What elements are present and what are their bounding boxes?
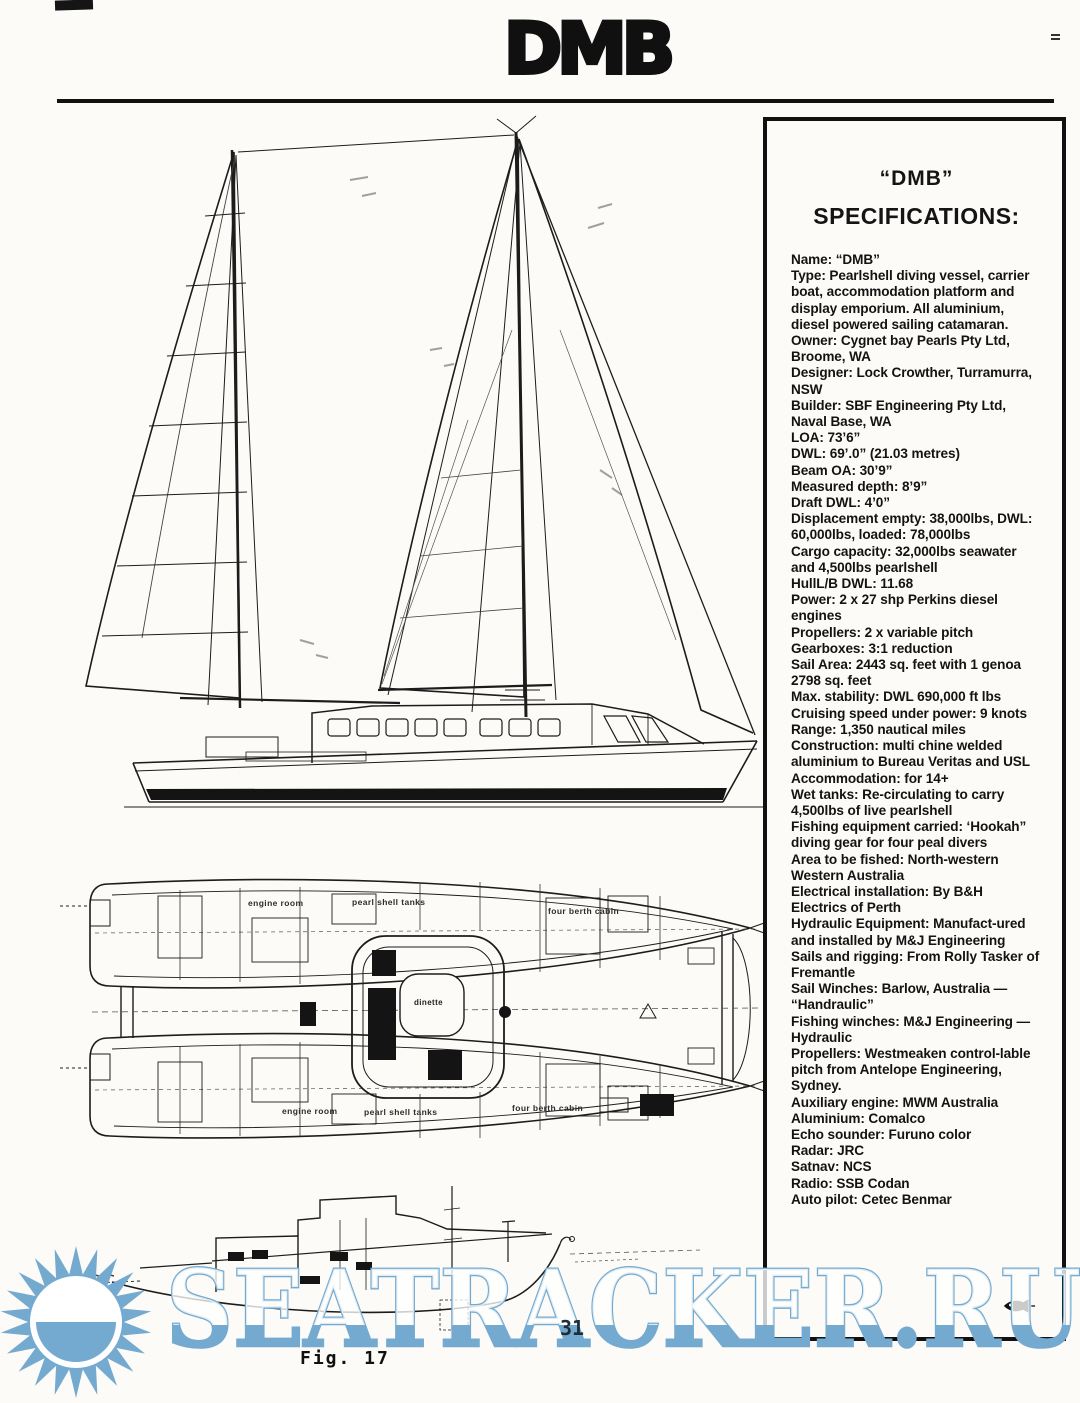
deck-plan-drawing [60, 880, 770, 1138]
spec-item: Draft DWL: 4’0” [791, 495, 1042, 511]
spec-item: Cargo capacity: 32,000lbs seawater and 4… [791, 544, 1042, 576]
scan-artifact [55, 0, 93, 11]
spec-item: Electrical installation: By B&H Electric… [791, 884, 1042, 916]
spec-item: Auto pilot: Cetec Benmar [791, 1192, 1042, 1208]
sail-plan-drawing [86, 116, 766, 807]
fish-icon [1002, 1297, 1036, 1315]
spec-item: Satnav: NCS [791, 1159, 1042, 1175]
spec-box-name: “DMB” [791, 167, 1042, 191]
spec-item: Type: Pearlshell diving vessel, carrier … [791, 268, 1042, 333]
spec-box-heading: SPECIFICATIONS: [791, 203, 1042, 230]
page-title: DMB [504, 14, 670, 84]
spec-item: Fishing winches: M&J Engineering — Hydra… [791, 1014, 1042, 1046]
spec-item: LOA: 73’6” [791, 430, 1042, 446]
spec-item: Displacement empty: 38,000lbs, DWL: 60,0… [791, 511, 1042, 543]
spec-item: Radar: JRC [791, 1143, 1042, 1159]
spec-item: Power: 2 x 27 shp Perkins diesel engines [791, 592, 1042, 624]
spec-item: Echo sounder: Furuno color [791, 1127, 1042, 1143]
scanned-document-page: engine room pearl shell tanks four berth… [0, 0, 1080, 1403]
header-rule [57, 99, 1054, 103]
plan-label-engine-room: engine room [282, 1106, 337, 1116]
spec-item: DWL: 69’.0” (21.03 metres) [791, 446, 1042, 462]
figure-caption: Fig. 17 [300, 1348, 390, 1369]
scan-artifact [1051, 34, 1060, 36]
spec-item: Radio: SSB Codan [791, 1176, 1042, 1192]
spec-item: Construction: multi chine welded alumini… [791, 738, 1042, 770]
spec-item: Designer: Lock Crowther, Turramurra, NSW [791, 365, 1042, 397]
spec-item: Max. stability: DWL 690,000 ft lbs [791, 689, 1042, 705]
spec-item: Sail Area: 2443 sq. feet with 1 genoa 27… [791, 657, 1042, 689]
spec-item: Accommodation: for 14+ [791, 771, 1042, 787]
spec-item: Builder: SBF Engineering Pty Ltd, Naval … [791, 398, 1042, 430]
spec-list: Name: “DMB”Type: Pearlshell diving vesse… [791, 252, 1042, 1208]
plan-label-pearl-shell-tanks: pearl shell tanks [352, 897, 425, 907]
spec-item: Measured depth: 8’9” [791, 479, 1042, 495]
page-number: 31 [560, 1316, 584, 1340]
spec-item: Area to be fished: North-western Western… [791, 852, 1042, 884]
interior-profile-drawing [95, 1186, 700, 1330]
plan-label-four-berth-cabin: four berth cabin [548, 906, 619, 916]
spec-item: Aluminium: Comalco [791, 1111, 1042, 1127]
spec-item: Beam OA: 30’9” [791, 463, 1042, 479]
spec-item: Wet tanks: Re-circulating to carry 4,500… [791, 787, 1042, 819]
spec-item: Sail Winches: Barlow, Australia — “Handr… [791, 981, 1042, 1013]
specifications-box: “DMB” SPECIFICATIONS: Name: “DMB”Type: P… [763, 117, 1066, 1341]
plan-label-four-berth-cabin: four berth cabin [512, 1103, 583, 1113]
spec-item: Propellers: Westmeaken control-lable pit… [791, 1046, 1042, 1095]
spec-item: HullL/B DWL: 11.68 [791, 576, 1042, 592]
spec-item: Name: “DMB” [791, 252, 1042, 268]
plan-label-dinette: dinette [414, 998, 443, 1007]
spec-item: Auxiliary engine: MWM Australia [791, 1095, 1042, 1111]
spec-item: Sails and rigging: From Rolly Tasker of … [791, 949, 1042, 981]
spec-item: Gearboxes: 3:1 reduction [791, 641, 1042, 657]
plan-label-engine-room: engine room [248, 898, 303, 908]
spec-item: Hydraulic Equipment: Manufact-ured and i… [791, 916, 1042, 948]
plan-label-pearl-shell-tanks: pearl shell tanks [364, 1107, 437, 1117]
spec-item: Propellers: 2 x variable pitch [791, 625, 1042, 641]
spec-item: Fishing equipment carried: ‘Hookah” divi… [791, 819, 1042, 851]
spec-item: Range: 1,350 nautical miles [791, 722, 1042, 738]
spec-item: Cruising speed under power: 9 knots [791, 706, 1042, 722]
spec-item: Owner: Cygnet bay Pearls Pty Ltd, Broome… [791, 333, 1042, 365]
